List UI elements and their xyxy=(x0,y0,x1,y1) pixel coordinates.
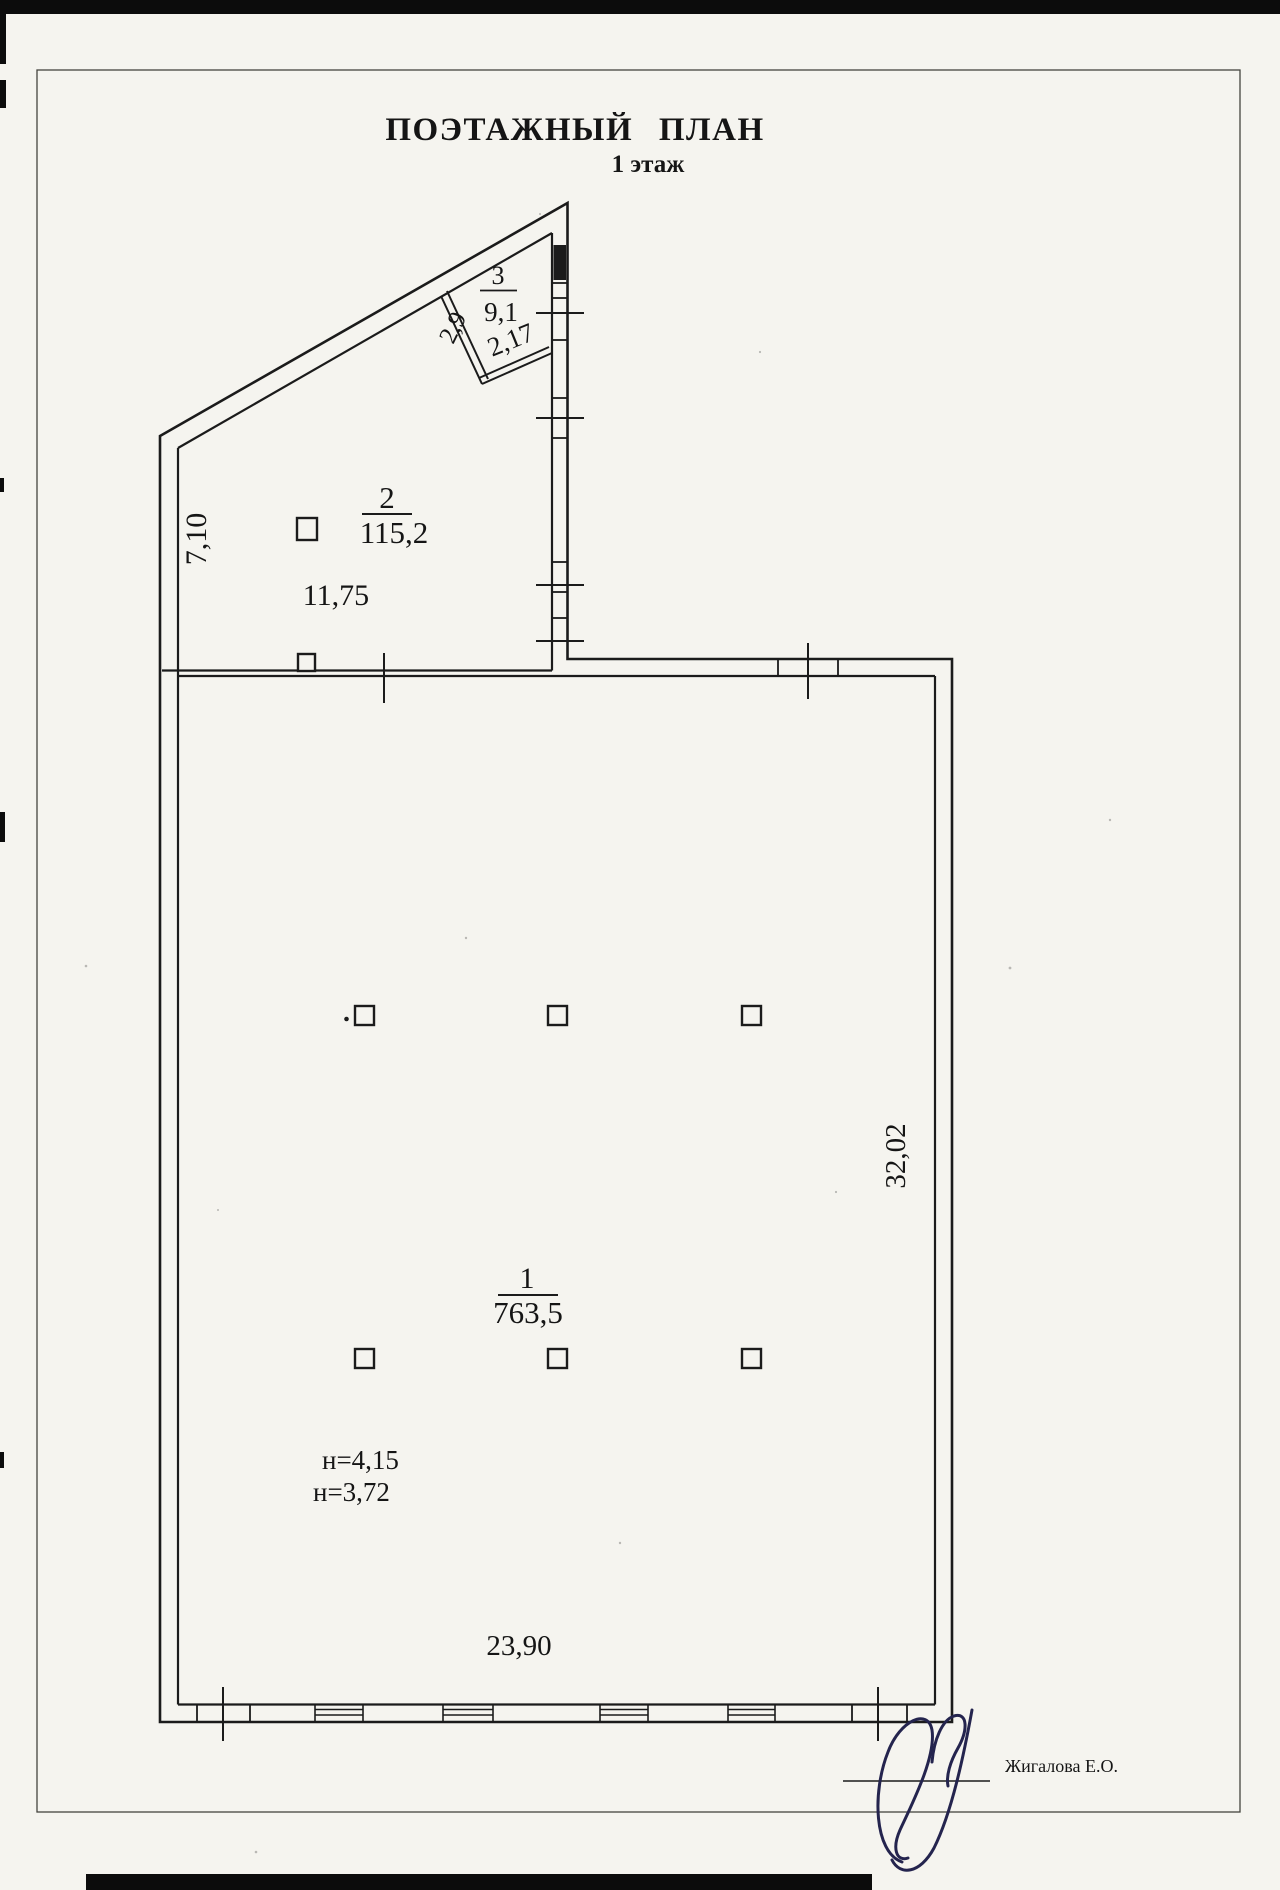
room2-right-wall-details xyxy=(536,245,584,641)
scan-artifacts xyxy=(0,0,1280,1890)
room3-side-dimension: 2,9 xyxy=(434,308,472,348)
room2-area: 115,2 xyxy=(360,515,429,550)
room1-width-dimension: 23,90 xyxy=(486,1630,551,1662)
column-marker xyxy=(742,1349,761,1368)
room1-height-note-1: н=4,15 xyxy=(322,1445,399,1475)
axis-ticks-bottom xyxy=(223,1687,878,1741)
column-marker xyxy=(355,1006,374,1025)
window-symbol xyxy=(315,1705,363,1723)
floor-label: 1 этаж xyxy=(612,151,686,178)
room1-area: 763,5 xyxy=(493,1295,563,1330)
column-marker-on-wall xyxy=(298,654,315,671)
ink-speck xyxy=(344,1017,349,1022)
scan-strip-top xyxy=(0,0,1280,14)
column-marker xyxy=(742,1006,761,1025)
window-symbols-bottom-wall xyxy=(315,1705,775,1723)
column-marker xyxy=(548,1349,567,1368)
scan-mark-left-1 xyxy=(0,80,6,108)
signature-name: Жигалова Е.О. xyxy=(1005,1756,1118,1776)
room1-number: 1 xyxy=(520,1262,535,1295)
room1-labels: 1 763,5 н=4,15 н=3,72 23,90 32,02 xyxy=(313,1123,912,1662)
title-block: ПОЭТАЖНЫЙ ПЛАН 1 этаж xyxy=(385,111,764,178)
scan-mark-left-4 xyxy=(0,1452,4,1468)
room2-number: 2 xyxy=(379,480,395,515)
top-wall-details xyxy=(384,643,838,703)
room2-depth-dimension: 7,10 xyxy=(180,513,213,566)
room1-depth-dimension: 32,02 xyxy=(880,1123,912,1188)
scan-strip-bottom xyxy=(86,1874,872,1890)
room3-labels: 3 9,1 2,17 2,9 xyxy=(434,261,538,362)
column-marker xyxy=(297,518,317,540)
room3-number: 3 xyxy=(492,261,505,290)
floor-plan-drawing: ПОЭТАЖНЫЙ ПЛАН 1 этаж xyxy=(0,0,1280,1890)
scan-mark-left-2 xyxy=(0,478,4,492)
scan-blob-topleft xyxy=(0,14,6,64)
window-symbol xyxy=(443,1705,493,1723)
room1-height-note-2: н=3,72 xyxy=(313,1477,390,1507)
handwritten-signature xyxy=(878,1710,972,1870)
outer-wall-outline xyxy=(160,203,952,1722)
column-marker xyxy=(548,1006,567,1025)
door-marker xyxy=(554,245,567,280)
scan-noise-dots xyxy=(85,213,1112,1853)
window-symbol xyxy=(600,1705,648,1723)
scanned-page: ПОЭТАЖНЫЙ ПЛАН 1 этаж xyxy=(0,0,1280,1890)
walls xyxy=(160,203,952,1722)
window-symbol xyxy=(728,1705,775,1723)
column-marker xyxy=(355,1349,374,1368)
page-title: ПОЭТАЖНЫЙ ПЛАН xyxy=(385,111,764,148)
column-markers xyxy=(297,518,761,1368)
wall-joint-lines-vertical-wall xyxy=(552,283,568,618)
signature-block: Жигалова Е.О. xyxy=(843,1710,1118,1870)
scan-mark-left-3 xyxy=(0,812,5,842)
room2-labels: 2 115,2 11,75 7,10 xyxy=(180,480,428,612)
sheet-border xyxy=(37,70,1240,1812)
wall-joint-lines-bottom xyxy=(197,1705,907,1723)
room2-width-dimension: 11,75 xyxy=(303,579,369,612)
bottom-wall-details xyxy=(197,1687,907,1741)
